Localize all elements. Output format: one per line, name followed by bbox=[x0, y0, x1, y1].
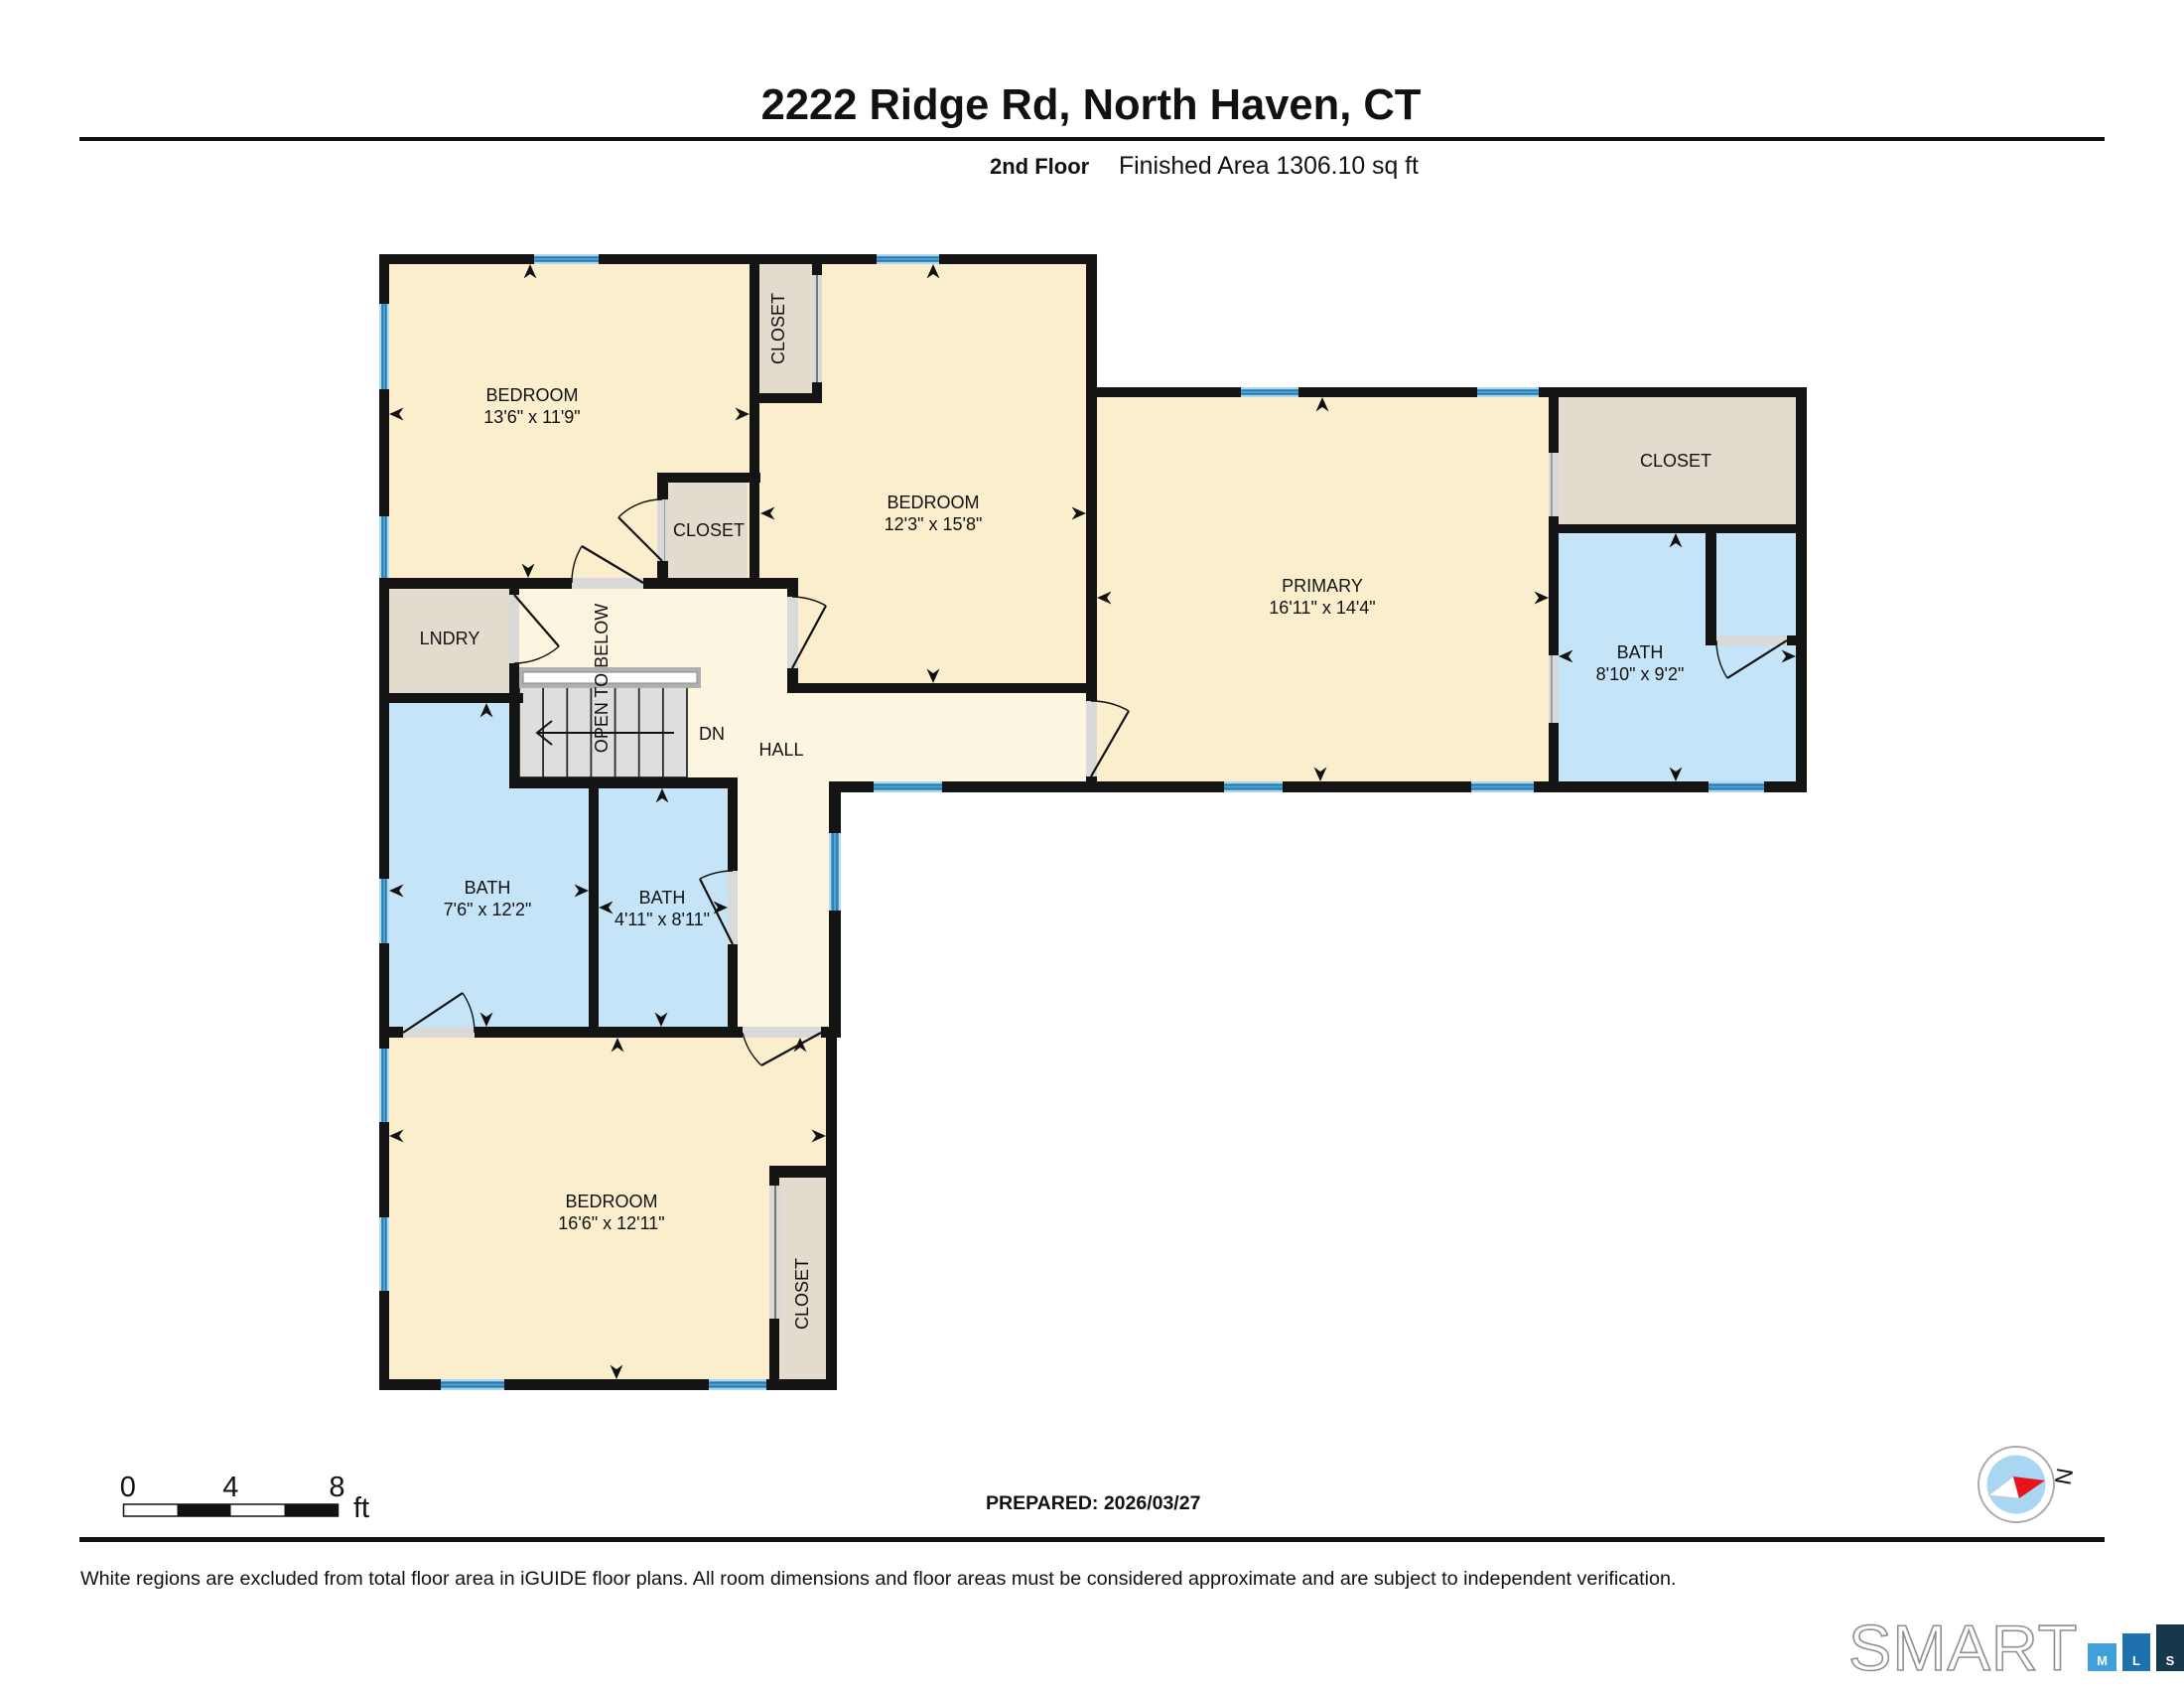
svg-text:L: L bbox=[2132, 1653, 2140, 1668]
svg-text:S: S bbox=[2166, 1653, 2175, 1668]
svg-text:PRIMARY: PRIMARY bbox=[1282, 576, 1363, 596]
svg-text:SMART: SMART bbox=[1848, 1612, 2078, 1684]
svg-text:DN: DN bbox=[699, 724, 725, 744]
svg-text:13'6" x 11'9": 13'6" x 11'9" bbox=[483, 407, 580, 427]
svg-text:White regions are excluded fro: White regions are excluded from total fl… bbox=[80, 1568, 1677, 1590]
svg-text:8: 8 bbox=[329, 1472, 344, 1503]
svg-text:CLOSET: CLOSET bbox=[792, 1258, 812, 1330]
svg-text:7'6" x 12'2": 7'6" x 12'2" bbox=[444, 900, 532, 919]
svg-text:12'3" x 15'8": 12'3" x 15'8" bbox=[885, 514, 983, 534]
svg-text:CLOSET: CLOSET bbox=[768, 293, 788, 364]
svg-text:CLOSET: CLOSET bbox=[673, 520, 745, 540]
svg-text:16'11" x 14'4": 16'11" x 14'4" bbox=[1269, 598, 1375, 618]
svg-text:PREPARED: 2026/03/27: PREPARED: 2026/03/27 bbox=[986, 1492, 1200, 1514]
svg-text:BATH: BATH bbox=[1617, 642, 1664, 662]
svg-text:OPEN TO BELOW: OPEN TO BELOW bbox=[592, 604, 612, 753]
svg-text:CLOSET: CLOSET bbox=[1640, 451, 1711, 471]
svg-text:ft: ft bbox=[353, 1492, 369, 1524]
svg-text:0: 0 bbox=[120, 1472, 136, 1503]
svg-text:2nd Floor: 2nd Floor bbox=[990, 154, 1090, 179]
svg-text:BEDROOM: BEDROOM bbox=[565, 1192, 657, 1211]
svg-text:2222 Ridge Rd, North Haven, CT: 2222 Ridge Rd, North Haven, CT bbox=[761, 81, 1422, 129]
svg-text:4: 4 bbox=[222, 1472, 238, 1503]
svg-text:M: M bbox=[2097, 1653, 2108, 1668]
svg-text:BEDROOM: BEDROOM bbox=[887, 492, 979, 512]
svg-text:Finished Area 1306.10 sq ft: Finished Area 1306.10 sq ft bbox=[1119, 153, 1419, 180]
svg-text:BATH: BATH bbox=[465, 878, 511, 898]
svg-text:4'11" x 8'11": 4'11" x 8'11" bbox=[614, 910, 710, 929]
svg-text:BEDROOM: BEDROOM bbox=[485, 385, 578, 405]
svg-text:LNDRY: LNDRY bbox=[420, 629, 480, 648]
svg-text:HALL: HALL bbox=[758, 740, 803, 760]
svg-text:8'10" x 9'2": 8'10" x 9'2" bbox=[1596, 664, 1685, 684]
svg-text:16'6" x 12'11": 16'6" x 12'11" bbox=[558, 1213, 664, 1233]
svg-text:BATH: BATH bbox=[639, 888, 686, 908]
